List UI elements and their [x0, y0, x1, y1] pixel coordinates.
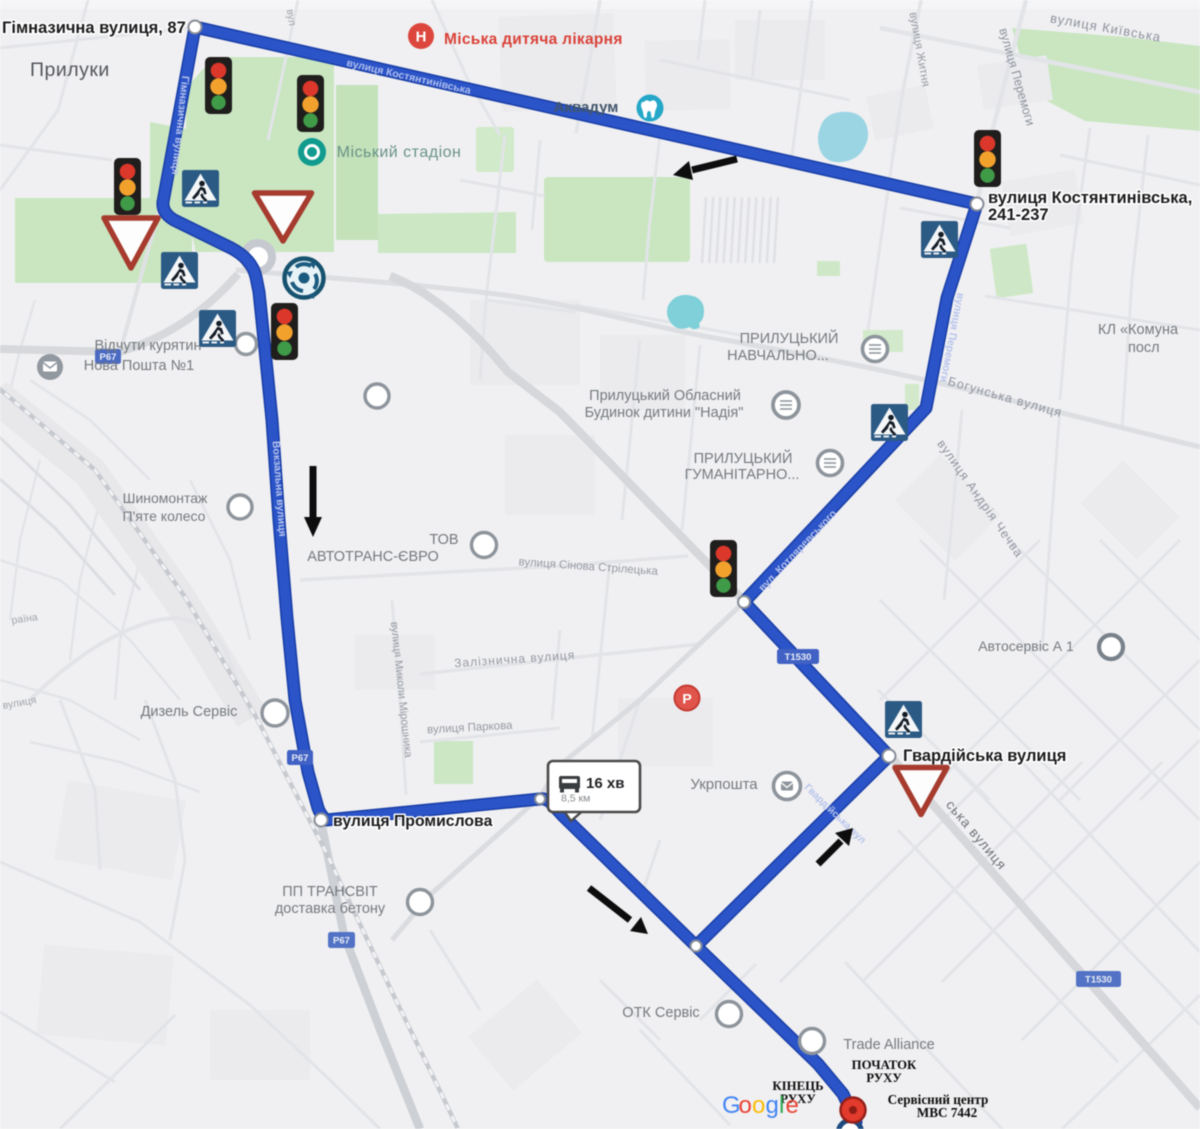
svg-text:Trade Alliance: Trade Alliance: [843, 1037, 934, 1053]
svg-text:КЛ «Комуна: КЛ «Комуна: [1098, 322, 1179, 338]
svg-text:П'яте колесо: П'яте колесо: [123, 508, 206, 524]
svg-text:Шиномонтаж: Шиномонтаж: [123, 490, 208, 506]
svg-text:АВТОТРАНС-ЄВРО: АВТОТРАНС-ЄВРО: [307, 549, 439, 565]
svg-text:Прилуцький Обласний: Прилуцький Обласний: [589, 388, 741, 404]
svg-text:Автосервіс А 1: Автосервіс А 1: [978, 638, 1074, 654]
svg-text:Міський стадіон: Міський стадіон: [337, 144, 462, 161]
svg-text:Будинок дитини "Надія": Будинок дитини "Надія": [585, 405, 744, 421]
svg-text:Укрпошта: Укрпошта: [690, 776, 758, 793]
svg-text:l: l: [779, 1092, 784, 1119]
svg-text:Н: Н: [416, 29, 427, 46]
svg-text:o: o: [752, 1092, 765, 1119]
svg-text:e: e: [786, 1092, 799, 1119]
svg-text:ПРИЛУЦЬКИЙ: ПРИЛУЦЬКИЙ: [740, 329, 839, 347]
svg-text:Р67: Р67: [333, 935, 350, 946]
svg-text:Аквадум: Аквадум: [554, 99, 619, 116]
svg-text:вулиця Костянтинівська,: вулиця Костянтинівська,: [988, 189, 1192, 207]
svg-text:Міська дитяча лікарня: Міська дитяча лікарня: [444, 31, 623, 48]
svg-text:вулиця Промислова: вулиця Промислова: [333, 813, 493, 830]
svg-text:Дизель Сервіс: Дизель Сервіс: [141, 704, 238, 720]
svg-text:Т1530: Т1530: [1085, 974, 1112, 985]
svg-text:Нова Пошта №1: Нова Пошта №1: [84, 358, 194, 374]
svg-text:ОТК Сервіс: ОТК Сервіс: [622, 1005, 699, 1021]
svg-text:НАВЧАЛЬНО...: НАВЧАЛЬНО...: [727, 348, 829, 364]
svg-text:Прилуки: Прилуки: [30, 59, 110, 81]
svg-text:посл: посл: [1128, 340, 1160, 356]
svg-text:РУХУ: РУХУ: [866, 1071, 902, 1085]
svg-text:g: g: [766, 1092, 779, 1119]
svg-text:241-237: 241-237: [988, 206, 1049, 224]
svg-text:доставка бетону: доставка бетону: [275, 901, 386, 917]
svg-text:КІНЕЦЬ: КІНЕЦЬ: [772, 1079, 823, 1093]
svg-text:16 хв: 16 хв: [586, 775, 624, 792]
svg-text:ГУМАНІТАРНО...: ГУМАНІТАРНО...: [685, 467, 800, 483]
svg-text:Гімназична вулиця, 87: Гімназична вулиця, 87: [2, 19, 186, 37]
svg-text:ПРИЛУЦЬКИЙ: ПРИЛУЦЬКИЙ: [694, 449, 793, 467]
svg-text:Т1530: Т1530: [785, 652, 812, 663]
svg-text:ПП ТРАНСВІТ: ПП ТРАНСВІТ: [282, 884, 378, 900]
svg-text:ТОВ: ТОВ: [429, 532, 458, 548]
svg-text:МВС 7442: МВС 7442: [917, 1105, 978, 1120]
svg-text:Відчути курятин: Відчути курятин: [94, 338, 201, 354]
svg-text:Гвардійська вулиця: Гвардійська вулиця: [903, 747, 1066, 765]
svg-text:8,5 км: 8,5 км: [561, 793, 590, 805]
svg-text:Р: Р: [682, 691, 691, 707]
svg-text:ПОЧАТОК: ПОЧАТОК: [852, 1058, 917, 1072]
svg-text:o: o: [739, 1092, 752, 1119]
svg-text:Р67: Р67: [292, 753, 309, 764]
